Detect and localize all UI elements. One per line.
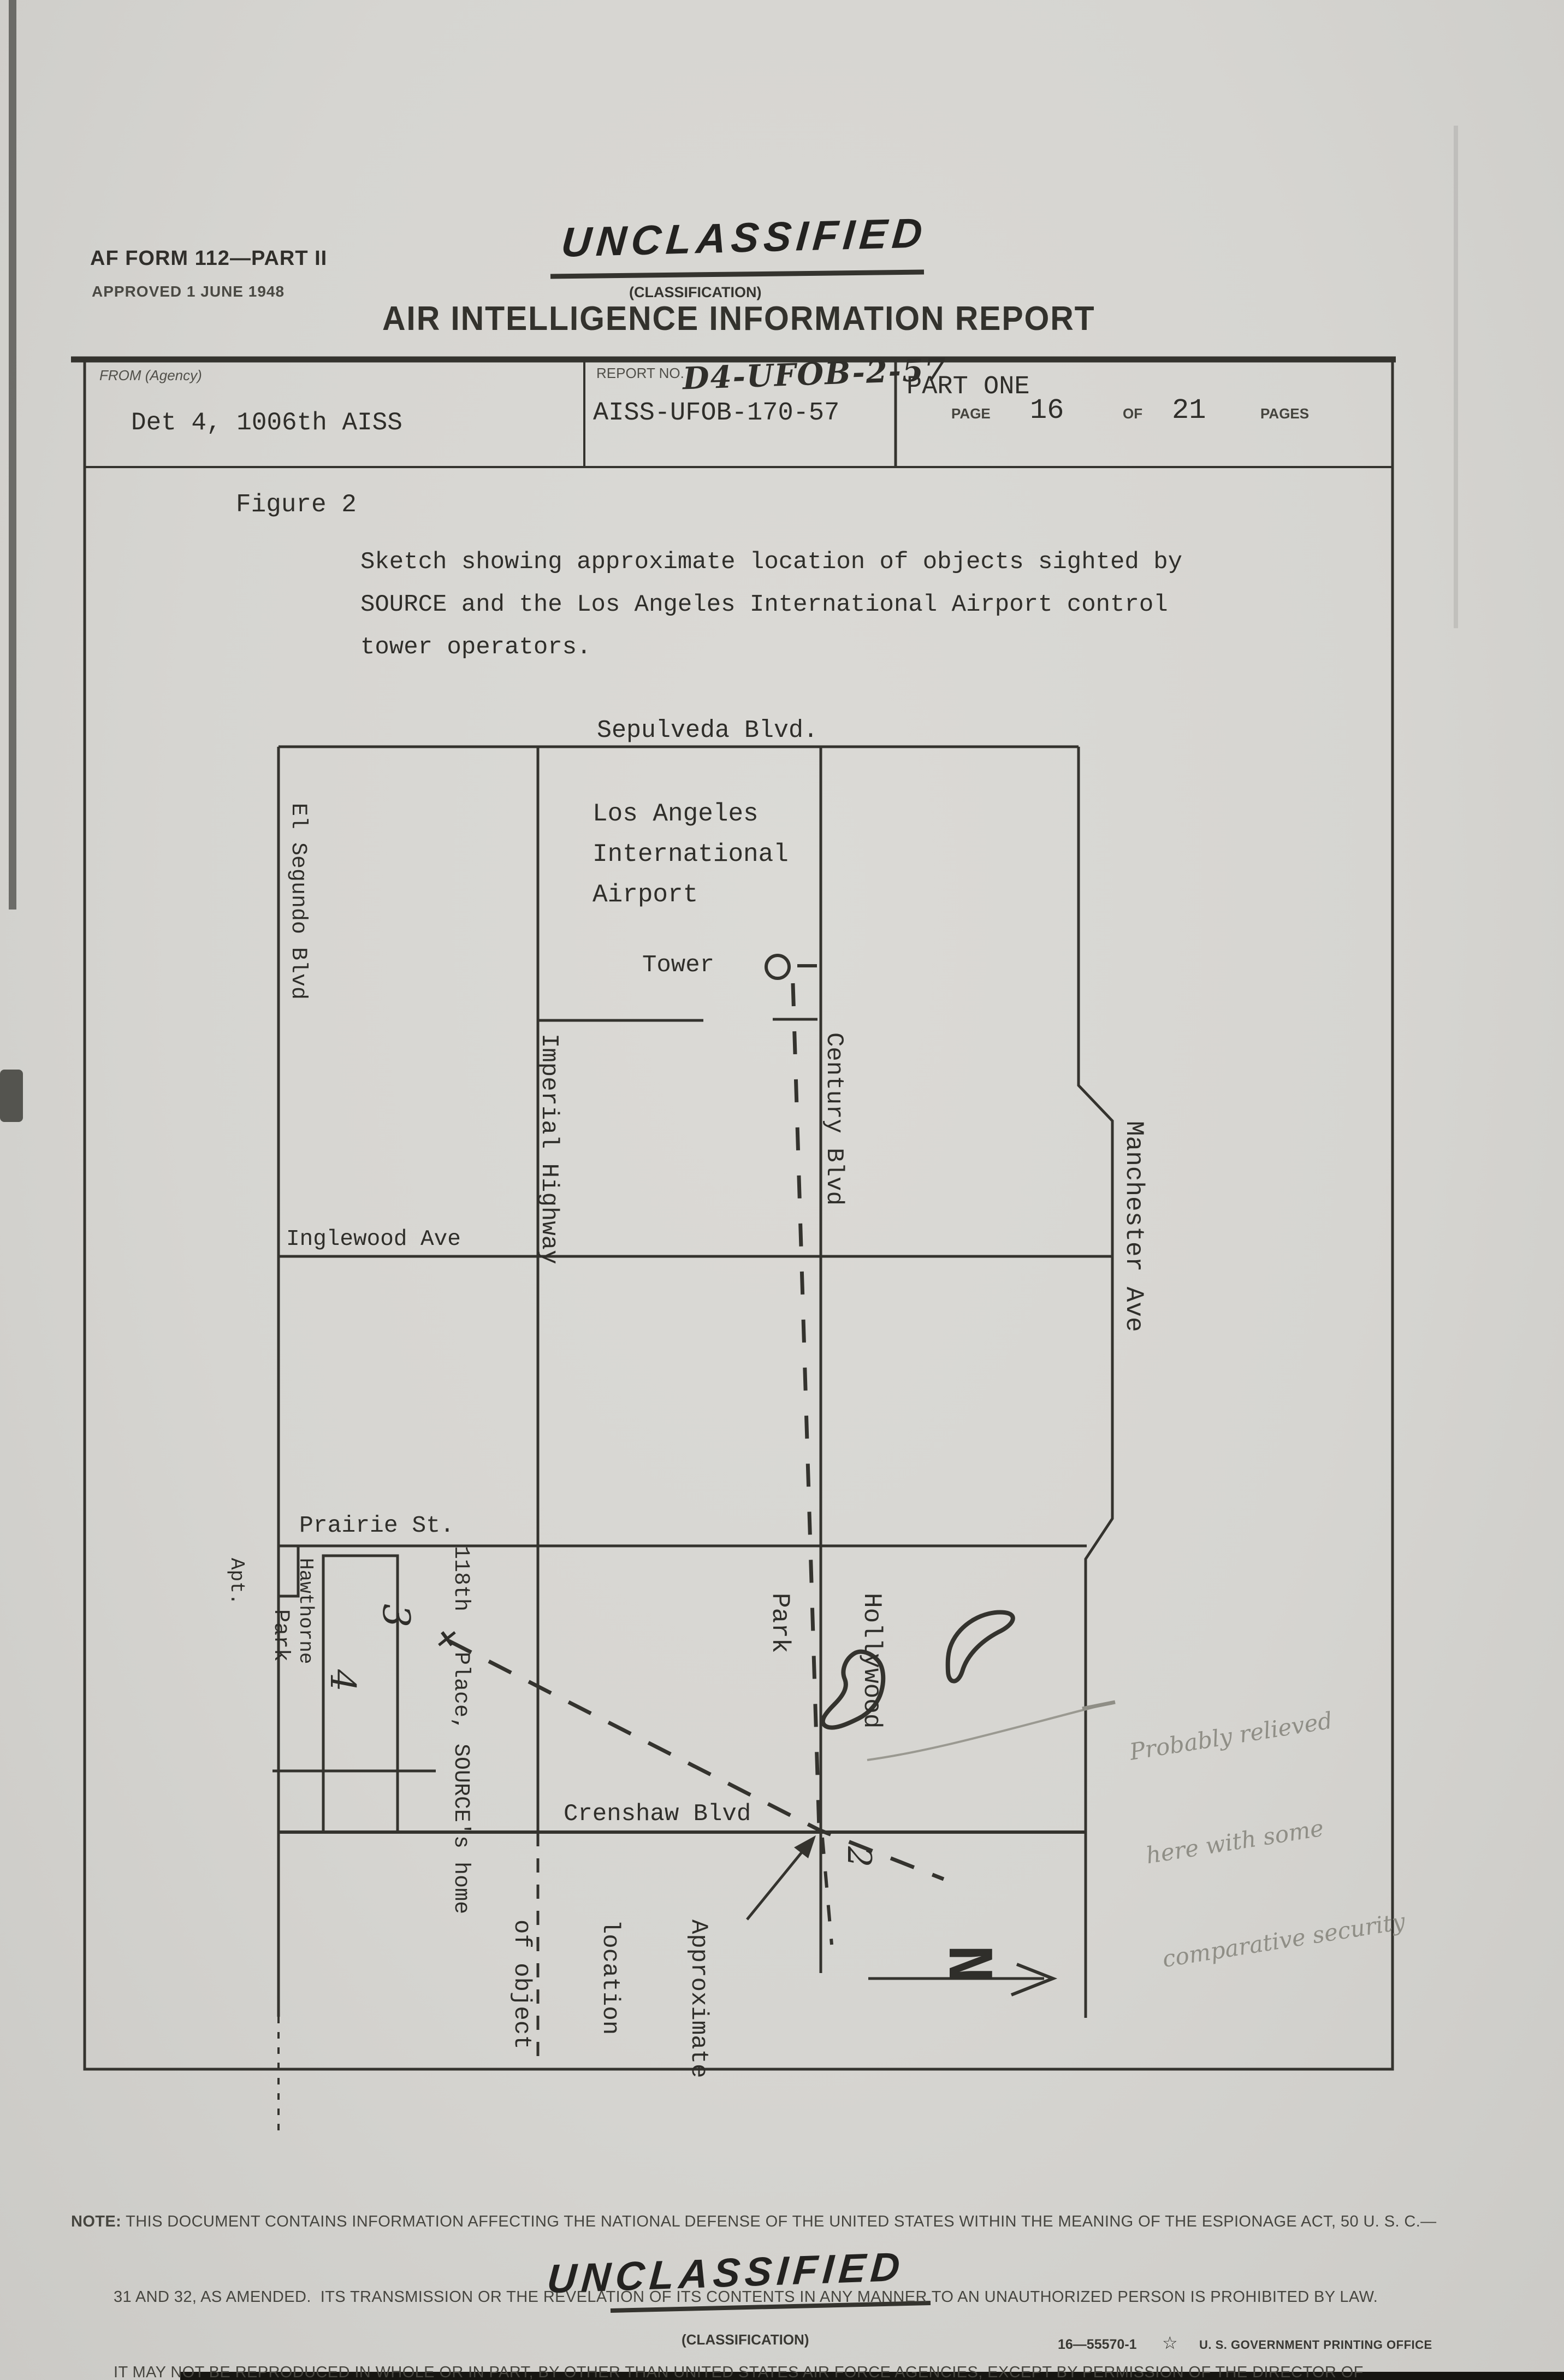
street-label-118th: 118th (448, 1546, 473, 1611)
street-label-imperial: Imperial Highway (535, 1034, 562, 1264)
of-label: OF (1123, 405, 1142, 422)
source-home-x-mark: ✕ (435, 1626, 455, 1653)
approx-location-label: Approximate location of object (448, 1920, 772, 2078)
source-home-label: Place, SOURCE's home (448, 1652, 473, 1914)
pages-label: PAGES (1260, 405, 1309, 422)
page-label: PAGE (951, 405, 991, 422)
handwritten-3: 3 (374, 1604, 417, 1627)
object-arrow-head (794, 1835, 816, 1858)
street-label-crenshaw: Crenshaw Blvd (564, 1800, 751, 1828)
figure-caption-line-3: tower operators. (360, 634, 591, 661)
street-label-century: Century Blvd (820, 1032, 848, 1206)
print-code: 16—55570-1 (1058, 2337, 1137, 2353)
report-no-label: REPORT NO. (596, 365, 684, 382)
pencil-note-line-2: here with some (1144, 1800, 1391, 1873)
note-label: NOTE: (71, 2213, 121, 2230)
hawthorne-apt-line-1: Hawthorne (294, 1558, 317, 1664)
note-line-3: IT MAY NOT BE REPRODUCED IN WHOLE OR IN … (71, 2360, 1437, 2380)
approx-location-line-1: Approximate (684, 1920, 713, 2078)
tower-circle (766, 955, 789, 978)
form-id: AF FORM 112—PART II (90, 247, 327, 270)
approx-location-line-2: location (595, 1920, 625, 2078)
street-label-manchester: Manchester Ave (1119, 1121, 1148, 1332)
part-label: PART ONE (907, 373, 1030, 401)
hawthorne-apt-line-2: Apt. (225, 1558, 248, 1664)
park-label: Park (268, 1609, 293, 1662)
note-line-1: THIS DOCUMENT CONTAINS INFORMATION AFFEC… (126, 2213, 1436, 2230)
figure-caption-line-1: Sketch showing approximate location of o… (360, 548, 1182, 576)
figure-caption-line-2: SOURCE and the Los Angeles International… (360, 591, 1168, 618)
handwritten-4: 4 (322, 1669, 363, 1692)
pencil-note-line-3: comparative security (1160, 1904, 1408, 1976)
airport-name-line-3: Airport (593, 881, 698, 909)
street-manchester-line (1079, 747, 1112, 2018)
north-letter: N (930, 1945, 1003, 1983)
street-label-inglewood: Inglewood Ave (286, 1227, 461, 1252)
street-label-el-segundo: El Segundo Blvd (286, 803, 310, 1000)
hollywood-park-label: Hollywood Park (703, 1593, 948, 1728)
scanned-report-page: AF FORM 112—PART II APPROVED 1 JUNE 1948… (0, 0, 1564, 2380)
stamp-underline-top (550, 272, 924, 276)
hollywood-park-line-2: Park (765, 1593, 795, 1728)
airport-name-line-1: Los Angeles (593, 800, 759, 828)
approval-date: APPROVED 1 JUNE 1948 (92, 283, 285, 300)
object-arrow-line (747, 1843, 809, 1920)
from-value: Det 4, 1006th AISS (131, 409, 402, 437)
approx-location-line-3: of object (507, 1920, 536, 2078)
street-label-prairie: Prairie St. (299, 1512, 454, 1539)
handwritten-2: 2 (840, 1846, 878, 1867)
report-title: AIR INTELLIGENCE INFORMATION REPORT (382, 299, 1095, 338)
sight-line-tower-lower (822, 1838, 832, 1945)
report-no-typed: AISS-UFOB-170-57 (593, 399, 839, 428)
gpo-star-icon: ☆ (1162, 2332, 1178, 2353)
hollywood-park-line-1: Hollywood (856, 1593, 887, 1728)
classification-stamp-top: UNCLASSIFIED (560, 209, 929, 267)
tower-label: Tower (642, 952, 714, 979)
classification-caption-bottom: (CLASSIFICATION) (682, 2331, 809, 2348)
classification-caption-top: (CLASSIFICATION) (629, 284, 761, 301)
page-number: 16 (1030, 394, 1064, 427)
hollywood-park-scribble (948, 1613, 1013, 1681)
pencil-leader-dash (1082, 1702, 1115, 1709)
airport-name-line-2: International (593, 840, 789, 869)
street-label-sepulveda: Sepulveda Blvd. (597, 717, 818, 745)
gpo-text: U. S. GOVERNMENT PRINTING OFFICE (1199, 2338, 1432, 2352)
total-pages: 21 (1172, 394, 1206, 427)
pencil-note-line-1: Probably relieved (1127, 1697, 1375, 1769)
from-label: FROM (Agency) (99, 367, 202, 384)
figure-label: Figure 2 (236, 491, 357, 519)
